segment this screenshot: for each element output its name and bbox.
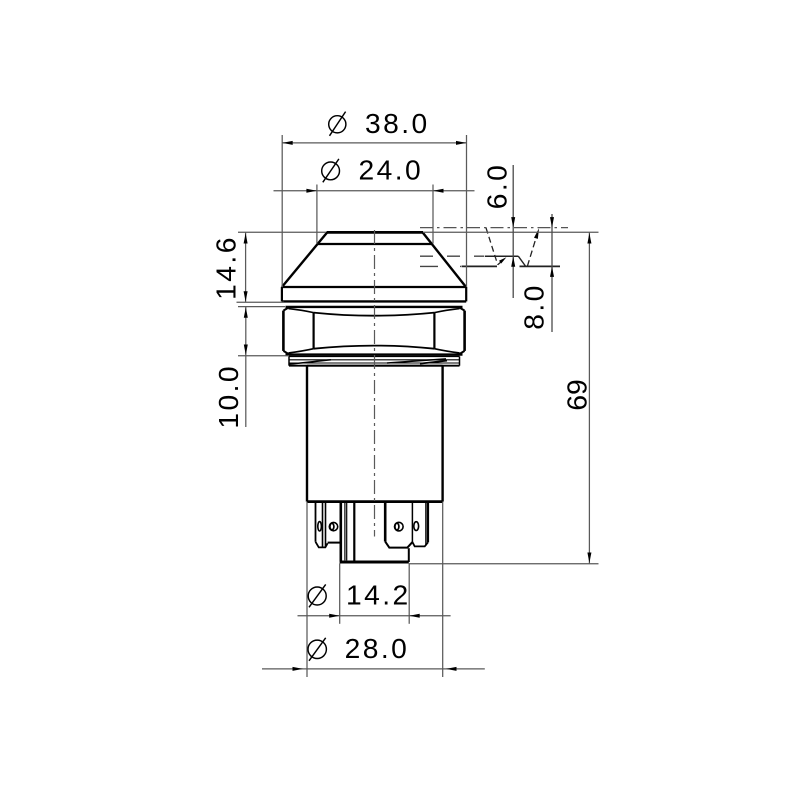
svg-text:14.2: 14.2 bbox=[346, 579, 411, 611]
svg-text:24.0: 24.0 bbox=[358, 154, 423, 186]
svg-text:69: 69 bbox=[560, 379, 592, 410]
svg-text:14.6: 14.6 bbox=[210, 235, 242, 300]
svg-text:6.0: 6.0 bbox=[481, 163, 513, 210]
svg-text:38.0: 38.0 bbox=[365, 107, 430, 139]
svg-text:8.0: 8.0 bbox=[518, 283, 550, 330]
svg-text:28.0: 28.0 bbox=[345, 632, 410, 664]
svg-text:10.0: 10.0 bbox=[212, 364, 244, 429]
